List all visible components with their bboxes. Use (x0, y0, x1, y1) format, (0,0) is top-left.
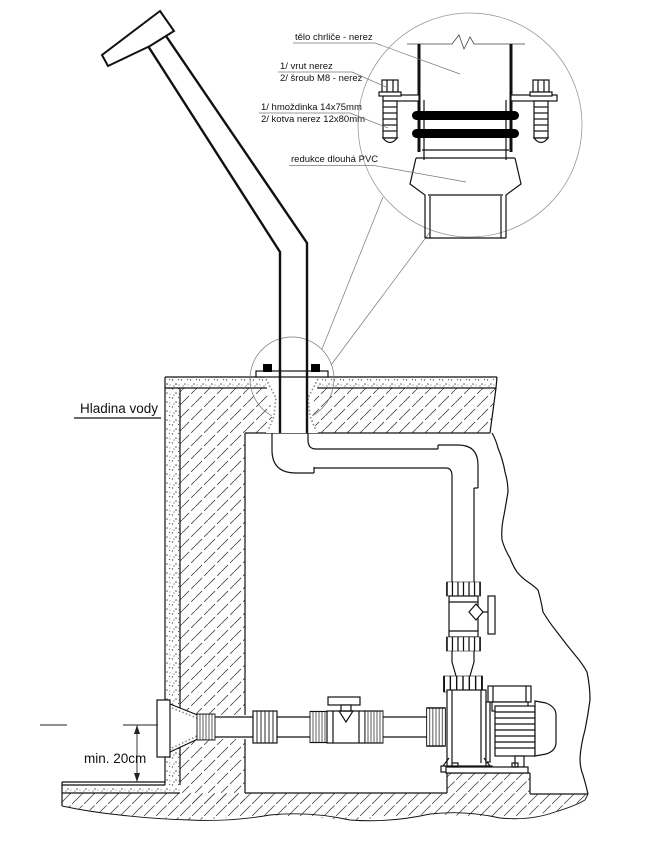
floor-finish-band (62, 785, 180, 793)
anchor-label-line1: 1/ hmoždinka 14x75mm (261, 102, 362, 113)
union-nut (447, 637, 480, 651)
motor-foot (515, 756, 524, 767)
detail-circle-view (358, 13, 582, 238)
screw-label-line1: 1/ vrut nerez (280, 61, 333, 72)
union-nut (447, 582, 480, 596)
base-plate (446, 767, 528, 773)
threaded-ring (197, 714, 215, 740)
seal-band-lower (412, 129, 519, 138)
seal-band-upper (412, 111, 519, 120)
anchor-label-line2: 2/ kotva nerez 12x80mm (261, 114, 365, 125)
prefilter-lid (488, 686, 531, 702)
technical-drawing-page: min. 20cm Hladina vody (0, 0, 649, 848)
valve-handle[interactable] (328, 697, 360, 705)
valve-handle[interactable] (488, 596, 495, 634)
installation-diagram: min. 20cm Hladina vody (0, 0, 649, 848)
anchor-bolt-left (263, 364, 272, 372)
volute-flange (486, 702, 490, 762)
discharge-valve (449, 596, 495, 637)
deck-finish-band (165, 377, 497, 388)
anchor-bolt-right (311, 364, 320, 372)
union-nut (365, 711, 383, 743)
suction-valve (327, 697, 365, 743)
water-level-label: Hladina vody (80, 401, 158, 416)
motor-end-bell (535, 701, 556, 756)
bulkhead-union-nut (253, 711, 277, 743)
chrlic-body-label: tělo chrliče - nerez (295, 32, 373, 43)
pump-housing (447, 690, 486, 770)
screw-label-line2: 2/ šroub M8 - nerez (280, 73, 363, 84)
reduction-label: redukce dlouhá PVC (291, 154, 378, 165)
water-level: Hladina vody (74, 401, 161, 418)
sleeve-mask (264, 377, 320, 433)
min-depth-label: min. 20cm (84, 751, 146, 766)
union-nut (310, 711, 328, 742)
wall-footing-hatch (180, 793, 245, 806)
intake-flange (157, 700, 170, 757)
pump-suction-union (427, 708, 446, 746)
